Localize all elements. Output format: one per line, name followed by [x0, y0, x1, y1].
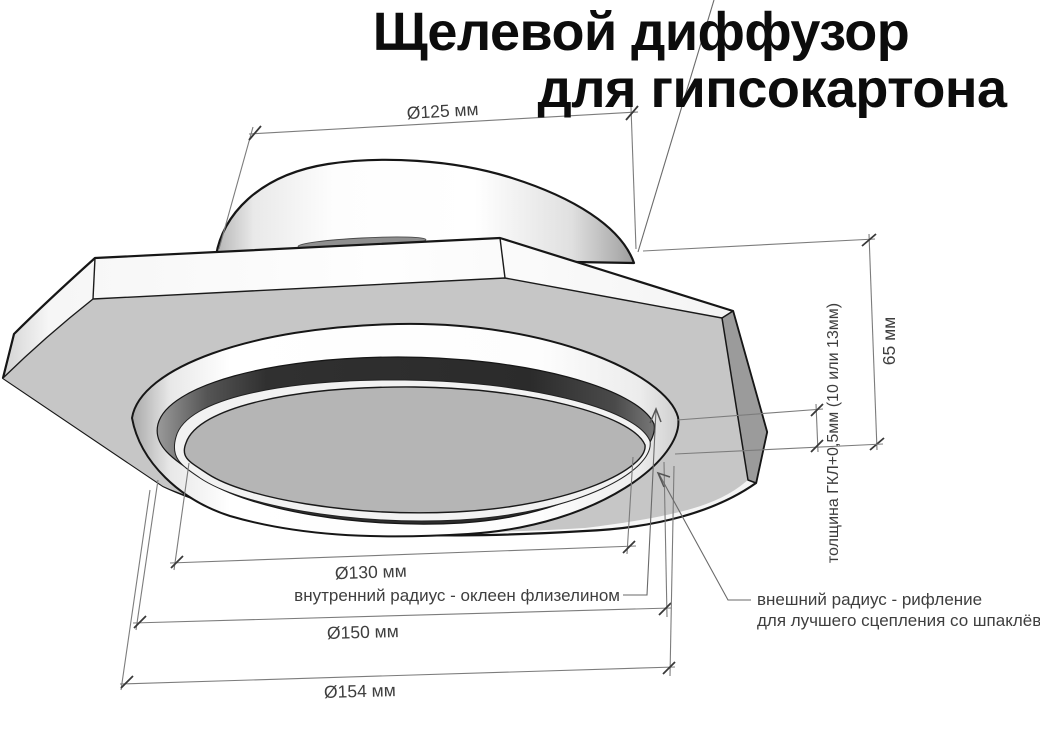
dim-label-height: 65 мм — [879, 317, 899, 365]
dim-label-inner-diameter: Ø130 мм — [335, 561, 407, 583]
outer-radius-label-line1: внешний радиус - рифление — [757, 590, 982, 609]
outer-radius-label-line2: для лучшего сцепления со шпаклёвкой — [757, 611, 1040, 630]
diffuser-technical-drawing: Ø125 мм 65 мм толщина ГКЛ+0,5мм (10 или … — [0, 0, 1040, 729]
dim-tick — [659, 603, 671, 615]
dim-label-flange-diameter: Ø150 мм — [327, 621, 399, 643]
title-line-2: для гипсокартона — [537, 59, 1008, 119]
title-line-1: Щелевой диффузор — [373, 2, 909, 62]
ext-line — [631, 107, 636, 249]
dim-line — [133, 608, 671, 623]
ext-line — [136, 480, 158, 630]
ext-line — [121, 490, 150, 690]
technical-drawing-page: Ø125 мм 65 мм толщина ГКЛ+0,5мм (10 или … — [0, 0, 1040, 729]
dim-label-neck-diameter: Ø125 мм — [406, 99, 479, 123]
ext-line — [643, 239, 875, 251]
dim-tick — [171, 556, 183, 568]
dim-label-panel-thickness: толщина ГКЛ+0,5мм (10 или 13мм) — [825, 303, 842, 563]
dim-tick — [811, 440, 823, 452]
inner-radius-label: внутренний радиус - оклеен флизелином — [294, 586, 620, 605]
dim-line — [869, 234, 877, 450]
dim-tick — [663, 662, 675, 674]
dim-line — [120, 667, 675, 684]
dim-tick — [623, 541, 635, 553]
dim-tick — [134, 616, 146, 628]
dim-label-outer-diameter: Ø154 мм — [324, 680, 396, 702]
